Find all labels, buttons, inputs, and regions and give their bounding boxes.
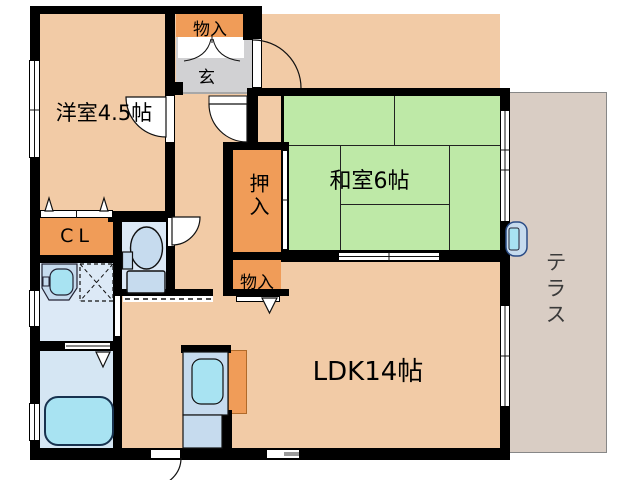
kitchen-door-swing (153, 458, 181, 480)
wall-washitsu-top (253, 88, 510, 96)
wall-entry-column (247, 88, 258, 145)
floor-plan: 洋室4.5帖 和室6帖 LDK14帖 テラス 玄 物入 物入 押入 CL (0, 0, 640, 480)
window-kitchen-bottom-pane (284, 452, 299, 456)
ldk-opening-track (123, 296, 213, 302)
tatami-line (340, 146, 341, 250)
wall-top (30, 6, 262, 14)
room-label-terrace: テラス (540, 251, 570, 329)
window-bath-left (29, 403, 40, 441)
tatami-line (394, 96, 395, 146)
room-label-youshitsu: 洋室4.5帖 (42, 97, 166, 127)
room-label-storage-top: 物入 (178, 15, 242, 40)
closet-sliding-track (40, 210, 113, 218)
washroom-door-leaf (114, 295, 121, 337)
window-ldk-right (500, 305, 510, 407)
entrance-door-leaf (252, 38, 262, 88)
kitchen-counter (228, 350, 247, 414)
wall-genkan-stub (174, 82, 183, 95)
bathroom (40, 351, 113, 448)
kitchen-back-door-leaf (150, 449, 181, 459)
storage-mid-track (236, 296, 280, 302)
wall-toilet-bottom (113, 289, 213, 296)
room-label-storage-mid: 物入 (233, 268, 281, 293)
tatami-line (283, 145, 500, 146)
wall-washitsu-west-edge (281, 96, 284, 146)
room-label-washitsu: 和室6帖 (292, 163, 447, 195)
youshitsu-door-leaf (165, 95, 175, 143)
room-label-genkan: 玄 (198, 63, 215, 88)
genkan-step-line (176, 92, 247, 94)
washitsu-sliding-track (338, 252, 440, 261)
wall-genkan-right (243, 6, 262, 40)
wall-oshiire-divider (223, 252, 289, 260)
window-youshitsu-left (29, 60, 40, 158)
wall-hall-column (223, 142, 233, 296)
toilet-room (122, 222, 166, 289)
toilet-door-leaf (167, 217, 175, 247)
room-label-ldk: LDK14帖 (278, 351, 458, 388)
wall-closet-bottom (30, 255, 122, 263)
room-label-oshiire: 押入 (244, 173, 273, 219)
window-washroom-left (29, 290, 40, 327)
room-label-closet: CL (48, 225, 106, 247)
tatami-line (449, 146, 450, 250)
washroom (40, 263, 113, 341)
bath-sliding-track (64, 342, 111, 350)
window-washitsu-right (500, 110, 510, 222)
oshiire-fusuma (282, 150, 288, 250)
wall-kitchen-stub (222, 410, 232, 448)
tatami-line (340, 204, 449, 205)
wall-kitchen-cap (181, 345, 231, 353)
